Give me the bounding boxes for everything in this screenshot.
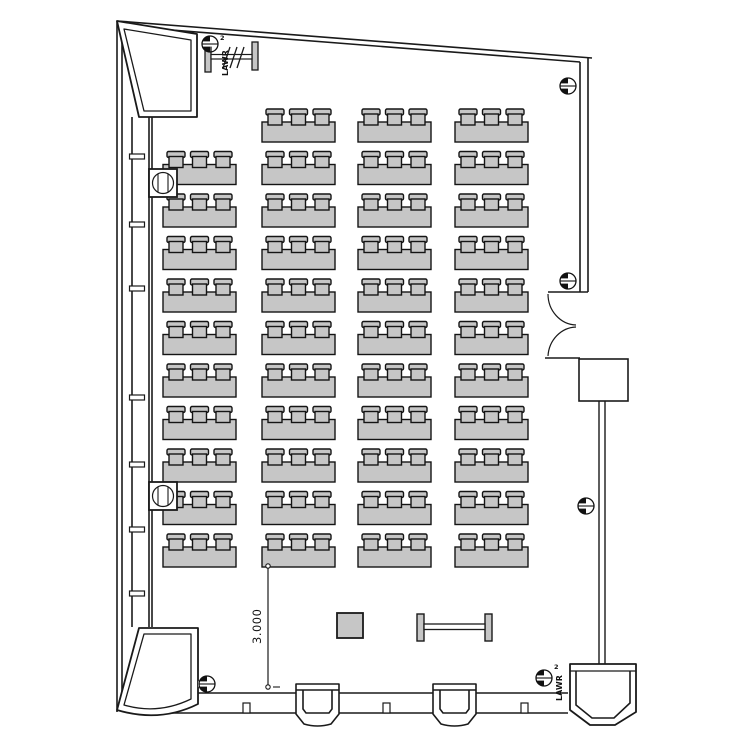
table-group (262, 194, 335, 227)
chair-seat (268, 284, 282, 295)
table-group (262, 279, 335, 312)
chair-seat (388, 369, 402, 380)
chair-seat (388, 327, 402, 338)
chair-seat (508, 412, 522, 423)
table-group (262, 407, 335, 440)
chair-seat (388, 497, 402, 508)
chair-seat (315, 114, 329, 125)
chair-seat (411, 157, 425, 168)
chair-seat (411, 497, 425, 508)
chair-seat (411, 454, 425, 465)
chair-seat (292, 114, 306, 125)
chair-seat (292, 412, 306, 423)
mullion (130, 222, 145, 227)
chair-seat (388, 284, 402, 295)
trestle-bench (417, 614, 492, 641)
chair-seat (485, 539, 499, 550)
chair-seat (461, 539, 475, 550)
chair-seat (388, 539, 402, 550)
chair-seat (461, 242, 475, 253)
fan-coil-unit (149, 169, 177, 197)
lectern-square (337, 613, 363, 638)
chair-seat (315, 199, 329, 210)
table-group (358, 237, 431, 270)
wall-stud (243, 703, 250, 713)
chair-seat (292, 454, 306, 465)
marker-label: LAWR (221, 50, 230, 76)
chair-seat (169, 454, 183, 465)
table-group (358, 534, 431, 567)
bottom-left-shaft-outer (117, 628, 198, 715)
table-group (358, 279, 431, 312)
mullion (130, 527, 145, 532)
chair-seat (461, 369, 475, 380)
chair-seat (315, 454, 329, 465)
chair-seat (508, 157, 522, 168)
chair-seat (508, 114, 522, 125)
table-group (163, 194, 236, 227)
chair-seat (268, 327, 282, 338)
level-marker-icon (559, 273, 577, 289)
door-swing-arc-lower (548, 327, 576, 356)
chair-seat (315, 284, 329, 295)
chair-seat (268, 539, 282, 550)
table-group (455, 534, 528, 567)
chair-seat (388, 242, 402, 253)
chair-seat (364, 284, 378, 295)
chair-seat (485, 497, 499, 508)
table-group (163, 407, 236, 440)
chair-seat (388, 157, 402, 168)
table-group (358, 492, 431, 525)
door-recess (296, 684, 339, 726)
chair-seat (292, 327, 306, 338)
table-group (455, 449, 528, 482)
chair-seat (411, 199, 425, 210)
chair-seat (485, 454, 499, 465)
level-marker-icon (559, 78, 577, 94)
chair-seat (315, 539, 329, 550)
chair-seat (193, 199, 207, 210)
chair-seat (364, 369, 378, 380)
table-group (455, 237, 528, 270)
chair-seat (268, 242, 282, 253)
chair-seat (193, 327, 207, 338)
table-group (262, 492, 335, 525)
table-group (262, 237, 335, 270)
chair-seat (268, 157, 282, 168)
door-recess (433, 684, 476, 726)
table-group (262, 534, 335, 567)
chair-seat (268, 497, 282, 508)
chair-seat (292, 497, 306, 508)
chair-seat (268, 199, 282, 210)
level-marker-icon (201, 36, 219, 52)
chair-seat (485, 412, 499, 423)
bottom-wall-details (243, 684, 528, 726)
mullion (130, 286, 145, 291)
chair-seat (169, 242, 183, 253)
chair-seat (485, 114, 499, 125)
chair-seat (411, 284, 425, 295)
chair-seat (485, 369, 499, 380)
chair-seat (169, 157, 183, 168)
table-group (163, 364, 236, 397)
chair-seat (292, 199, 306, 210)
mullion (130, 462, 145, 467)
chair-seat (169, 199, 183, 210)
table-group (455, 322, 528, 355)
chair-seat (169, 284, 183, 295)
chair-seat (268, 454, 282, 465)
floor-plan-page: 3.000 LAWR 2 LAWR 2 (0, 0, 750, 750)
table-group (262, 364, 335, 397)
closet-box (579, 359, 628, 401)
chair-seat (216, 284, 230, 295)
chair-seat (388, 199, 402, 210)
chair-seat (364, 327, 378, 338)
chair-seat (364, 242, 378, 253)
chair-seat (216, 199, 230, 210)
chair-seat (315, 157, 329, 168)
table-group (455, 152, 528, 185)
chair-seat (388, 114, 402, 125)
table-group (262, 109, 335, 142)
table-group (358, 449, 431, 482)
table-group (455, 109, 528, 142)
vestibule-outer (570, 664, 636, 725)
door-swing-arc-upper (548, 294, 576, 325)
chair-seat (315, 369, 329, 380)
chair-seat (485, 327, 499, 338)
chair-seat (216, 327, 230, 338)
chair-seat (268, 114, 282, 125)
table-group (262, 449, 335, 482)
chair-seat (411, 242, 425, 253)
table-group (358, 152, 431, 185)
chair-seat (461, 497, 475, 508)
loose-objects (205, 42, 492, 641)
table-group (163, 237, 236, 270)
chair-seat (364, 454, 378, 465)
chair-seat (169, 539, 183, 550)
level-marker-icon (198, 676, 216, 692)
chair-seat (292, 284, 306, 295)
table-group (262, 152, 335, 185)
chair-seat (216, 454, 230, 465)
chair-seat (364, 412, 378, 423)
table-group (163, 534, 236, 567)
chair-seat (485, 284, 499, 295)
marker-number: 2 (220, 34, 225, 42)
floor-plan-drawing: 3.000 LAWR 2 LAWR 2 (0, 0, 750, 750)
chair-seat (292, 242, 306, 253)
chair-seat (461, 199, 475, 210)
marker-label: LAWR (555, 675, 564, 701)
chair-seat (461, 454, 475, 465)
chair-seat (411, 369, 425, 380)
chair-seat (169, 369, 183, 380)
chair-seat (216, 497, 230, 508)
mullion (130, 154, 145, 159)
table-group (358, 109, 431, 142)
chair-seat (169, 327, 183, 338)
chair-seat (461, 327, 475, 338)
chair-seat (216, 412, 230, 423)
chair-seat (364, 114, 378, 125)
chair-seat (411, 114, 425, 125)
chair-seat (461, 157, 475, 168)
chair-seat (485, 242, 499, 253)
chair-seat (411, 327, 425, 338)
corner-shafts (117, 21, 198, 715)
top-left-shaft-outer (117, 21, 197, 117)
chair-seat (193, 539, 207, 550)
dimension-end-dot (266, 685, 270, 689)
chair-seat (364, 199, 378, 210)
chair-seat (315, 242, 329, 253)
table-group (455, 492, 528, 525)
chair-seat (216, 539, 230, 550)
chair-seat (411, 539, 425, 550)
chair-seat (169, 412, 183, 423)
chair-seat (508, 369, 522, 380)
chair-seat (216, 242, 230, 253)
wall-stud (521, 703, 528, 713)
chair-seat (364, 157, 378, 168)
chair-seat (193, 242, 207, 253)
chair-seat (485, 199, 499, 210)
table-group (455, 279, 528, 312)
chair-seat (411, 412, 425, 423)
chair-seat (388, 454, 402, 465)
chair-seat (193, 157, 207, 168)
chair-seat (508, 539, 522, 550)
table-group (358, 322, 431, 355)
fan-coil-unit (149, 482, 177, 510)
chair-seat (193, 497, 207, 508)
table-group (163, 322, 236, 355)
chair-seat (364, 539, 378, 550)
chair-seat (461, 284, 475, 295)
level-marker-icon (535, 670, 553, 686)
chair-seat (193, 454, 207, 465)
chair-seat (315, 412, 329, 423)
table-group (262, 322, 335, 355)
chair-seat (292, 369, 306, 380)
chair-seat (388, 412, 402, 423)
chair-seat (193, 284, 207, 295)
level-marker-icon (577, 498, 595, 514)
seating-area (163, 109, 528, 567)
table-group (358, 194, 431, 227)
chair-seat (315, 327, 329, 338)
chair-seat (508, 497, 522, 508)
table-group (455, 194, 528, 227)
table-group (163, 449, 236, 482)
chair-seat (216, 157, 230, 168)
chair-seat (508, 199, 522, 210)
chair-seat (508, 454, 522, 465)
dimension-end-dot (266, 564, 270, 568)
chair-seat (508, 284, 522, 295)
dimension-3000: 3.000 (250, 564, 280, 689)
chair-seat (193, 412, 207, 423)
table-group (455, 364, 528, 397)
chair-seat (193, 369, 207, 380)
table-group (455, 407, 528, 440)
table-group (358, 407, 431, 440)
chair-seat (292, 157, 306, 168)
table-group (358, 364, 431, 397)
dimension-label: 3.000 (250, 609, 264, 644)
chair-seat (292, 539, 306, 550)
chair-seat (315, 497, 329, 508)
chair-seat (461, 114, 475, 125)
chair-seat (508, 242, 522, 253)
chair-seat (461, 412, 475, 423)
chair-seat (268, 369, 282, 380)
marker-number: 2 (554, 663, 559, 671)
chair-seat (216, 369, 230, 380)
chair-seat (485, 157, 499, 168)
mullion (130, 591, 145, 596)
chair-seat (508, 327, 522, 338)
table-group (163, 279, 236, 312)
chair-seat (364, 497, 378, 508)
chair-seat (268, 412, 282, 423)
mullion (130, 395, 145, 400)
wall-stud (383, 703, 390, 713)
